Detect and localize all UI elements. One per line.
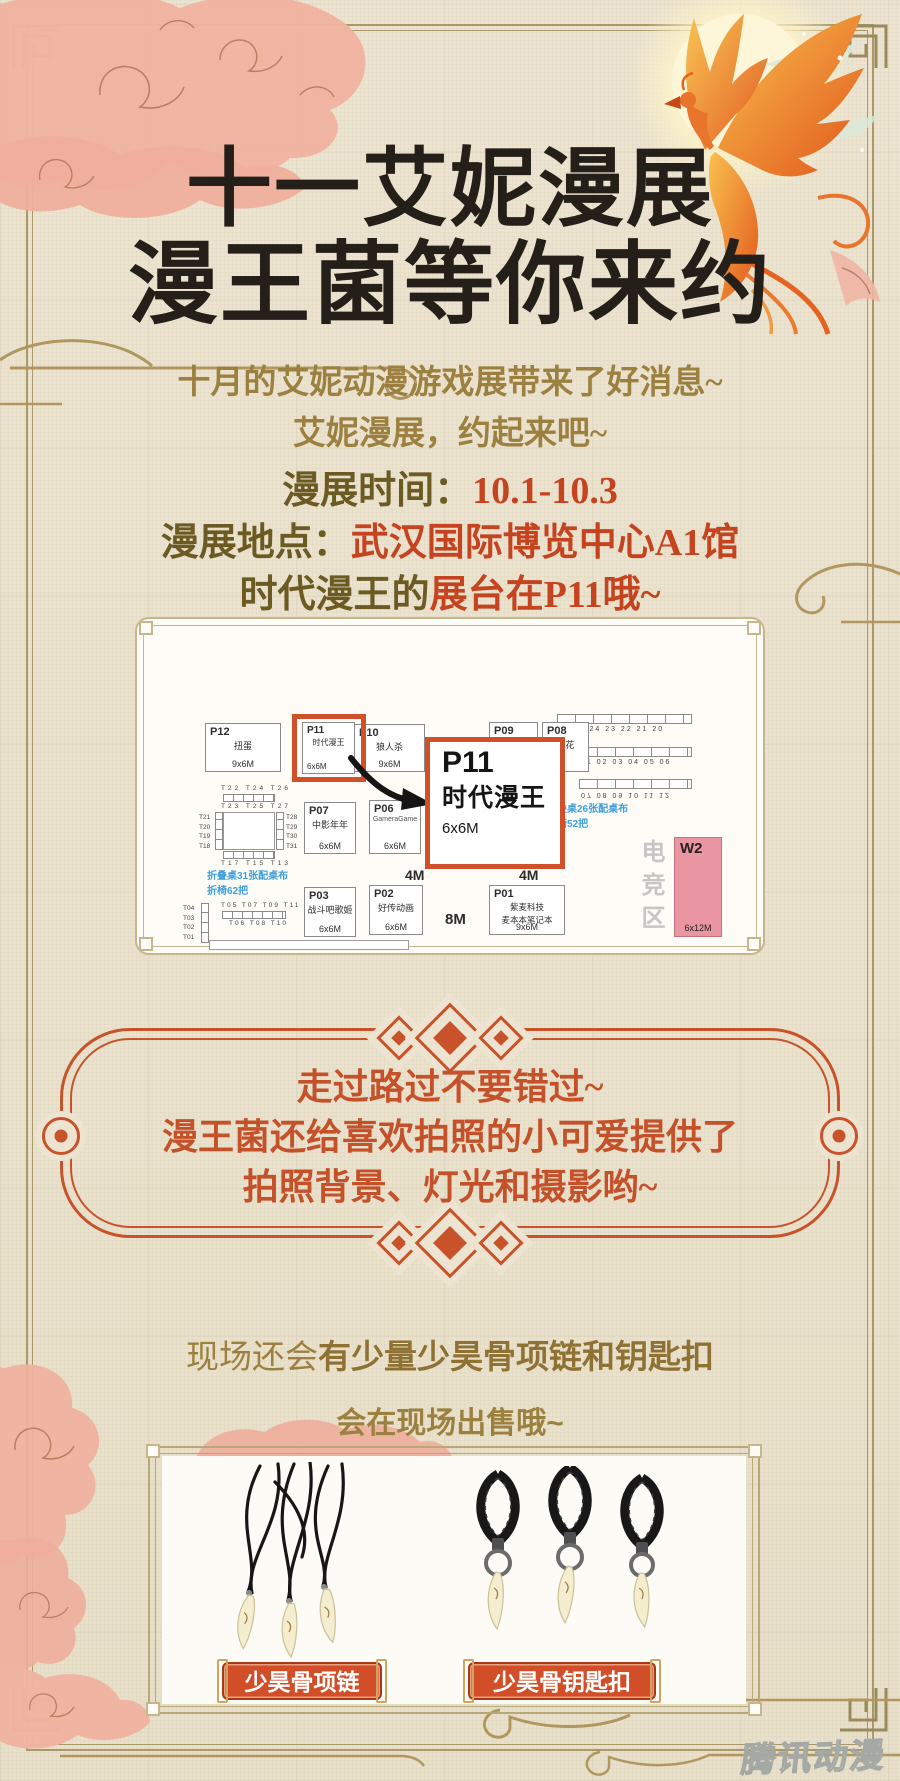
panel-corner-square [146, 1702, 160, 1716]
promo-line1: 走过路过不要错过~ [0, 1058, 900, 1110]
esports-zone-label: 电竞区 [633, 839, 668, 938]
booth-location-line: 时代漫王的展台在P11哦~ [0, 563, 900, 618]
table-strip [276, 812, 284, 850]
label-bracket-icon [650, 1659, 661, 1703]
intro-line1: 十月的艾妮动漫游戏展带来了好消息~ [0, 355, 900, 403]
booth-prefix: 时代漫王的 [240, 574, 430, 616]
t-table-labels: T06 T08 T10 [229, 920, 288, 927]
aisle-width-label: 4M [519, 867, 538, 883]
panel-corner-square [748, 1702, 762, 1716]
poster-page: 十一艾妮漫展 漫王菌等你来约 十月的艾妮动漫游戏展带来了好消息~ 艾妮漫展，约起… [0, 0, 900, 1781]
t-table-labels: T28 T29 T30 T31 [286, 813, 297, 851]
event-place-label: 漫展地点： [161, 522, 351, 564]
table-strip [223, 794, 275, 802]
table-numbers: 01 02 03 04 05 06 [581, 759, 671, 766]
map-corner-square [747, 937, 761, 951]
booth-p01: P01 紫麦科技 麦本本笔记本 9x6M [489, 885, 565, 935]
t-table-labels: T04 T03 T02 T01 [183, 904, 194, 942]
t-table-labels: T05 T07 T09 T11 [221, 902, 300, 909]
arrow-icon [345, 752, 437, 814]
table-strip [223, 851, 275, 859]
label-bracket-icon [217, 1659, 228, 1703]
diamond-ornament-top [383, 1013, 517, 1063]
event-place-line: 漫展地点：武汉国际博览中心A1馆 [0, 511, 900, 566]
product-label-keychain: 少昊骨钥匙扣 [468, 1662, 656, 1700]
product-label-necklace: 少昊骨项链 [222, 1662, 382, 1700]
booth-w2: W2 6x12M [674, 837, 722, 937]
merch-line1-bold: 有少量少昊骨项链和钥匙扣 [318, 1338, 714, 1375]
t-table-labels: T21 T20 T19 T18 [199, 813, 210, 851]
map-corner-square [139, 937, 153, 951]
bone-pendant [234, 1583, 338, 1657]
event-place-value: 武汉国际博览中心A1馆 [351, 522, 739, 564]
booth-p11-callout: P11 时代漫王 6x6M [425, 737, 565, 869]
merch-line1-regular: 现场还会 [186, 1338, 318, 1375]
bone-keychain-photo [450, 1466, 690, 1662]
panel-corner-square [748, 1444, 762, 1458]
promo-line2: 漫王菌还给喜欢拍照的小可爱提供了 [0, 1108, 900, 1160]
poster-title-line2: 漫王菌等你来约 [0, 240, 900, 330]
diamond-ornament-bottom [383, 1218, 517, 1268]
t-table-labels: T22 T24 T26 [221, 785, 291, 792]
label-bracket-icon [376, 1659, 387, 1703]
long-table-bar [209, 940, 409, 950]
event-time-line: 漫展时间：10.1-10.3 [0, 459, 900, 514]
map-corner-square [747, 621, 761, 635]
promo-line3: 拍照背景、灯光和摄影哟~ [0, 1158, 900, 1210]
poster-title-line1: 十一艾妮漫展 [0, 146, 900, 232]
t-table-labels: T23 T25 T27 [221, 803, 291, 810]
aisle-width-label: 4M [405, 867, 424, 883]
floor-plan-map: P12 扭蛋 9x6M P11 时代漫王 6x6M P10 狼人杀 9x6M P… [135, 617, 765, 955]
merch-line2: 会在现场出售哦~ [0, 1398, 900, 1442]
map-corner-square [139, 621, 153, 635]
booth-p12: P12 扭蛋 9x6M [205, 723, 281, 772]
t-table-labels: T17 T15 T13 [221, 860, 291, 867]
table-block [223, 812, 275, 850]
panel-corner-square [146, 1444, 160, 1458]
table-strip [579, 747, 692, 757]
booth-p03: P03 战斗吧歌姬 6x6M [304, 887, 356, 937]
gold-scroll-line-bottom-left [60, 1748, 430, 1768]
table-numbers: 07 08 09 10 11 12 [581, 791, 671, 798]
intro-line2: 艾妮漫展，约起来吧~ [0, 406, 900, 454]
aisle-width-label: 8M [445, 911, 466, 928]
keychain-item [481, 1468, 660, 1629]
table-strip [579, 779, 692, 789]
event-time-value: 10.1-10.3 [472, 470, 618, 512]
furniture-note-left: 折叠桌31张配桌布 折椅62把 [207, 869, 288, 899]
table-strip [201, 903, 209, 943]
bone-necklace-photo [190, 1462, 410, 1662]
watermark: 腾讯动漫 [739, 1727, 900, 1781]
label-bracket-icon [463, 1659, 474, 1703]
merch-line1: 现场还会有少量少昊骨项链和钥匙扣 [0, 1330, 900, 1378]
event-time-label: 漫展时间： [282, 470, 472, 512]
table-strip [215, 812, 223, 850]
booth-p02: P02 好传动画 6x6M [369, 885, 423, 935]
table-strip [222, 911, 286, 919]
booth-suffix: 展台在P11哦~ [430, 574, 661, 616]
